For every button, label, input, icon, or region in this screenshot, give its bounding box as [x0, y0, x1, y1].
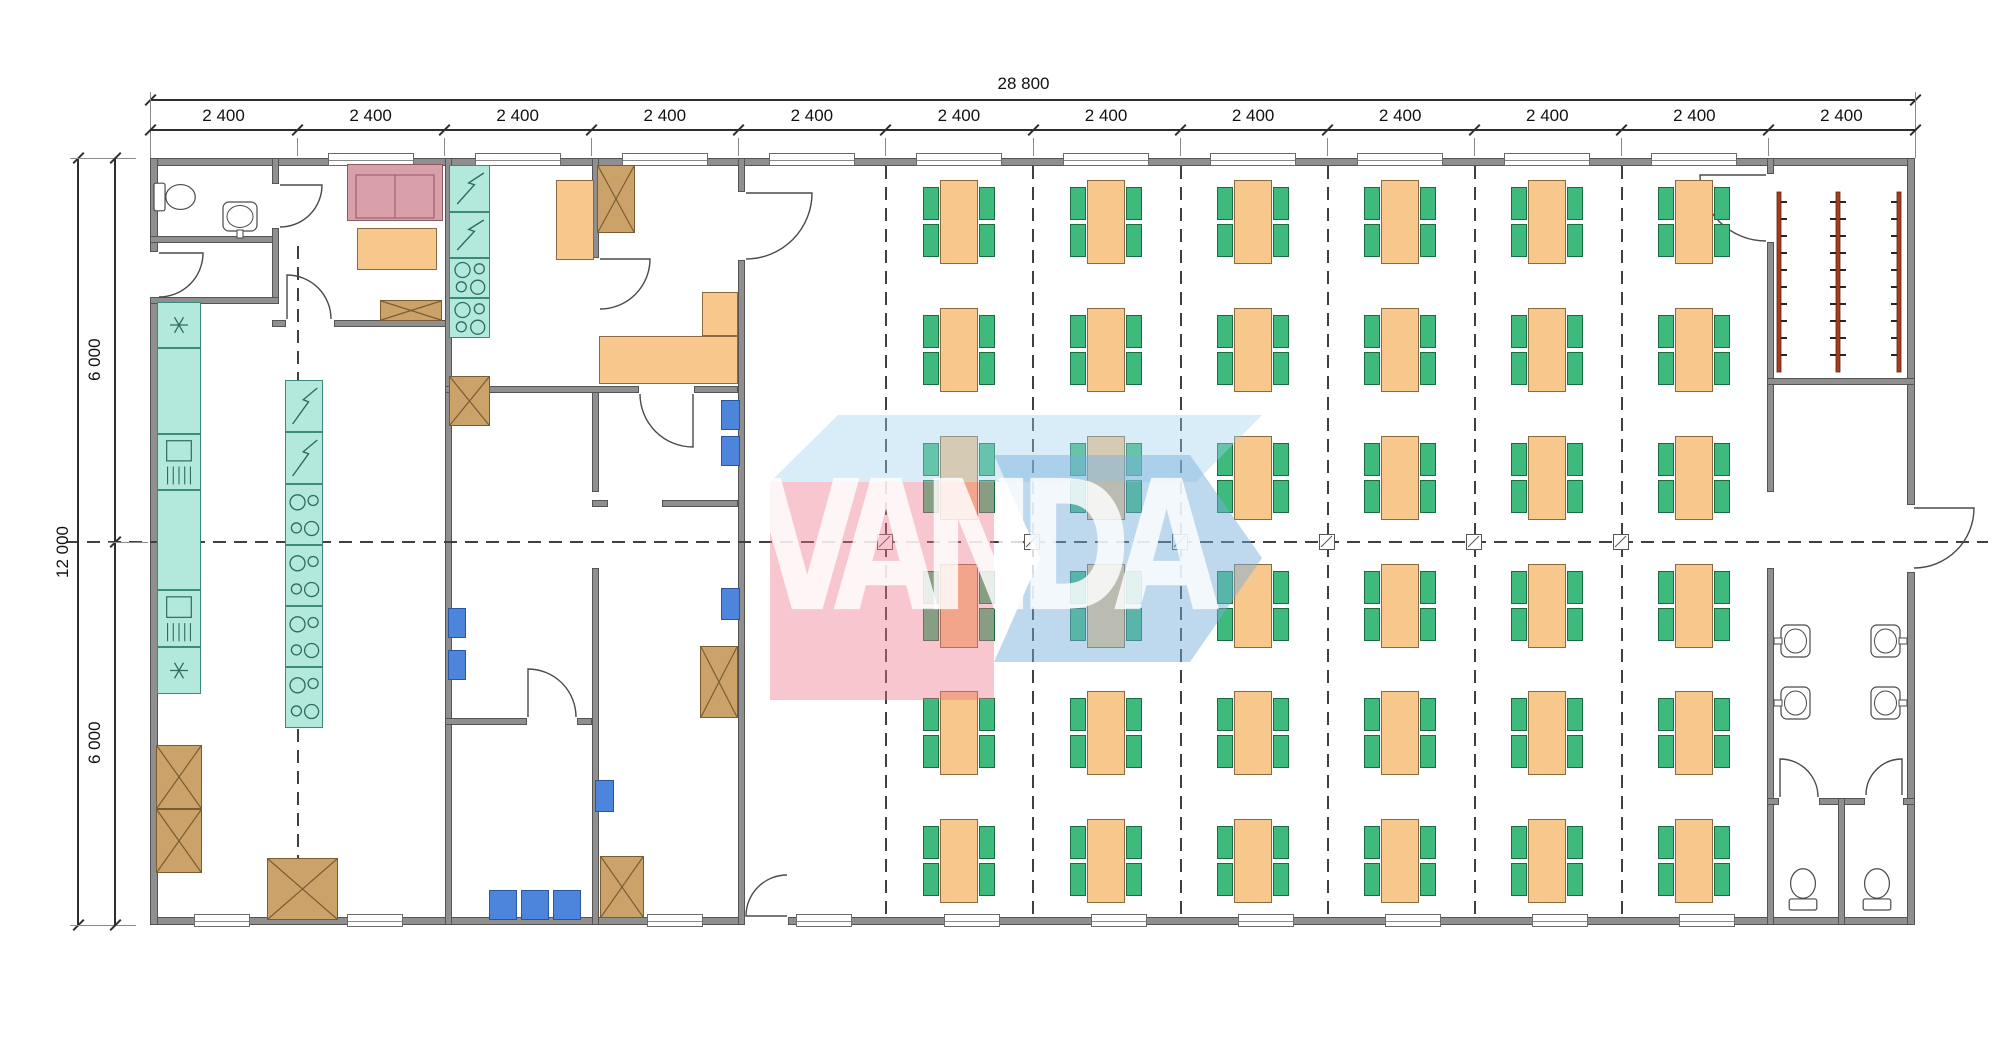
dimension-module-label: 2 400 [1768, 106, 1915, 126]
dimension-total-width-label: 28 800 [998, 74, 1050, 94]
dimension-extension [1033, 138, 1034, 156]
dimension-module-label: 2 400 [444, 106, 591, 126]
watermark-text: VANDA [754, 443, 1201, 652]
floor-plan-canvas: VANDA28 8002 4002 4002 4002 4002 4002 40… [0, 0, 2000, 1041]
dimension-height-segment-label: 6 000 [85, 704, 105, 764]
dimension-extension [1180, 138, 1181, 156]
dimension-module-label: 2 400 [1621, 106, 1768, 126]
dimension-extension [70, 925, 136, 926]
dimension-module-label: 2 400 [1474, 106, 1621, 126]
dimension-extension [444, 138, 445, 156]
dimension-extension [1915, 138, 1916, 156]
floor-plan-page: VANDA28 8002 4002 4002 4002 4002 4002 40… [0, 0, 2000, 1041]
dimension-extension [297, 138, 298, 156]
dimension-module-label: 2 400 [885, 106, 1032, 126]
dimension-extension [70, 158, 136, 159]
dimension-extension [150, 138, 151, 156]
dimension-extension [1327, 138, 1328, 156]
dimension-line [77, 158, 79, 925]
dimension-module-label: 2 400 [591, 106, 738, 126]
dimension-height-segment-label: 6 000 [85, 321, 105, 381]
dimension-module-label: 2 400 [1327, 106, 1474, 126]
dimension-line [150, 99, 1915, 101]
dimension-module-label: 2 400 [297, 106, 444, 126]
dimension-extension [1474, 138, 1475, 156]
dimension-module-label: 2 400 [738, 106, 885, 126]
dimension-module-label: 2 400 [150, 106, 297, 126]
dimension-module-label: 2 400 [1180, 106, 1327, 126]
dimension-total-height-label: 12 000 [53, 508, 73, 578]
dimension-extension [1768, 138, 1769, 156]
dimension-extension [108, 542, 148, 543]
dimension-module-label: 2 400 [1033, 106, 1180, 126]
dimension-extension [885, 138, 886, 156]
dimension-extension [591, 138, 592, 156]
dimension-extension [1621, 138, 1622, 156]
dimension-extension [738, 138, 739, 156]
